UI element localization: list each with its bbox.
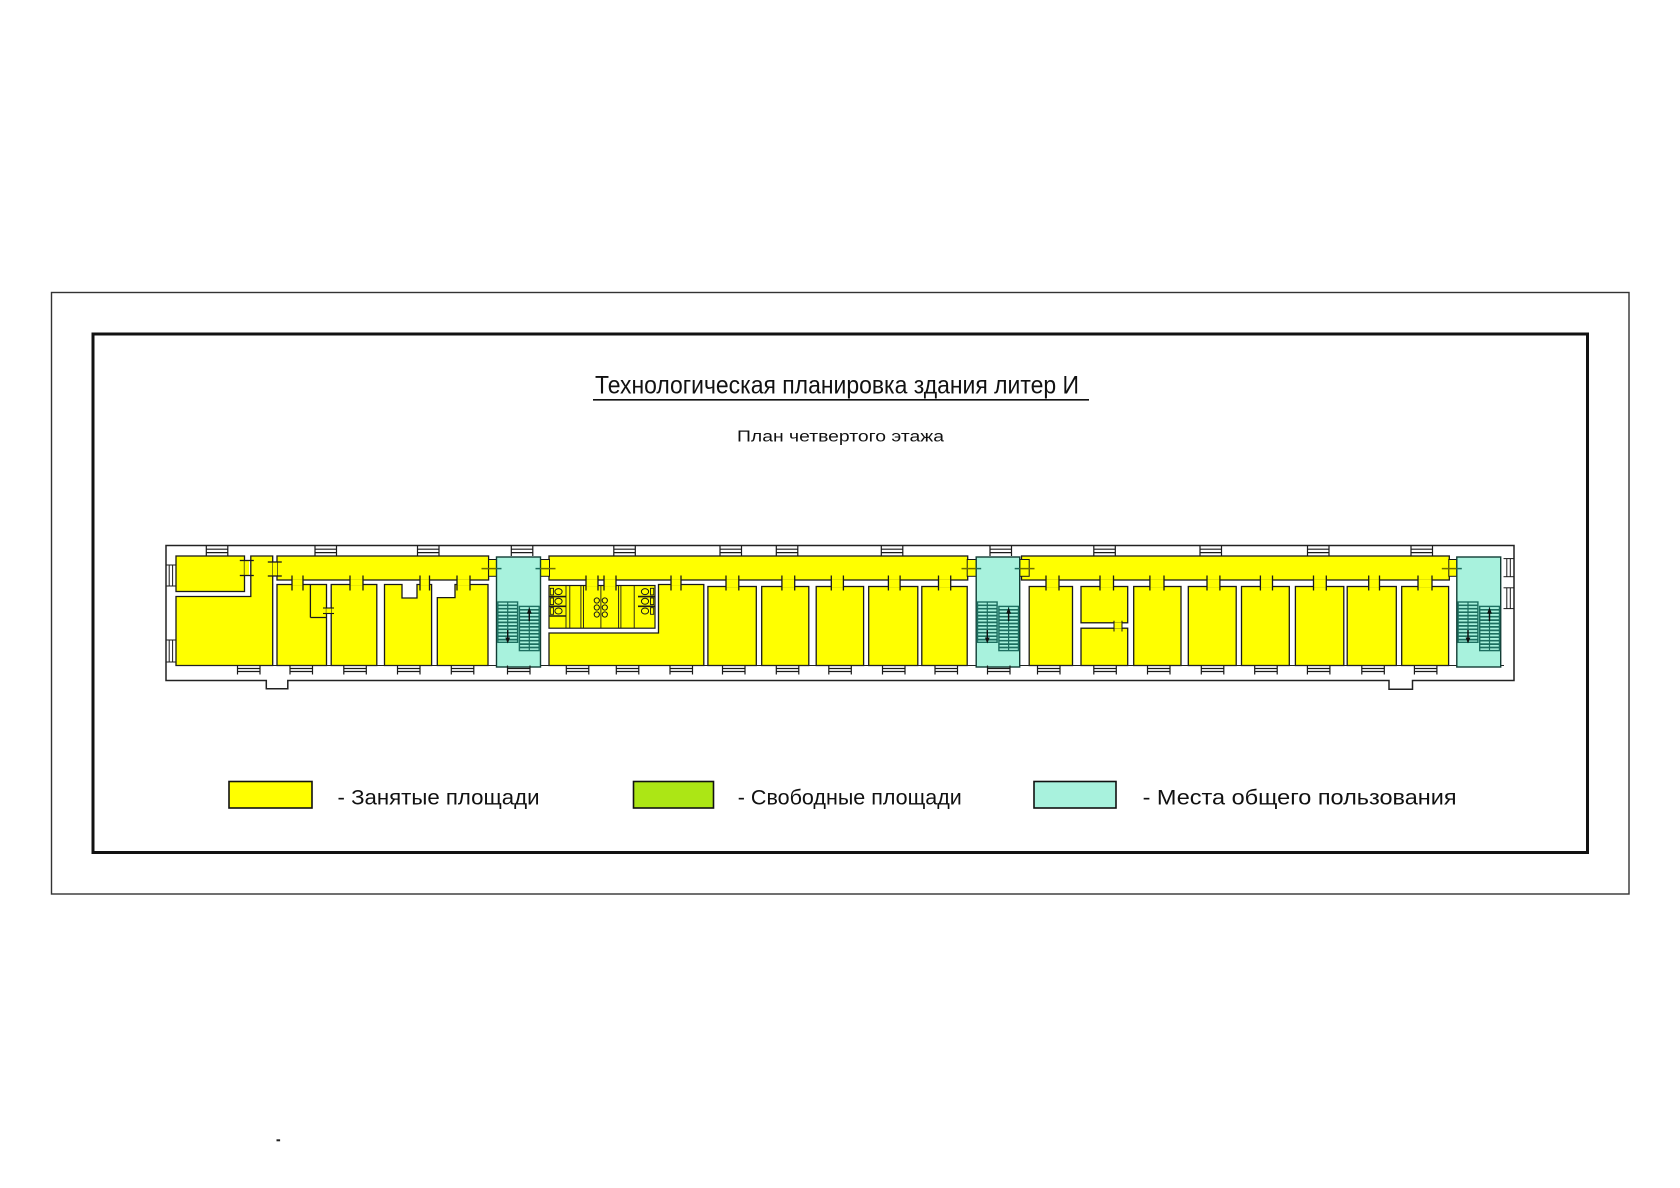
svg-text:- Места общего пользования: - Места общего пользования	[1143, 787, 1457, 810]
svg-text:- Свободные площади: - Свободные площади	[738, 787, 962, 810]
svg-text:Технологическая планировка зда: Технологическая планировка здания литер …	[595, 372, 1079, 400]
svg-text:План четвертого этажа: План четвертого этажа	[737, 429, 944, 446]
svg-text:- Занятые площади: - Занятые площади	[338, 787, 540, 810]
